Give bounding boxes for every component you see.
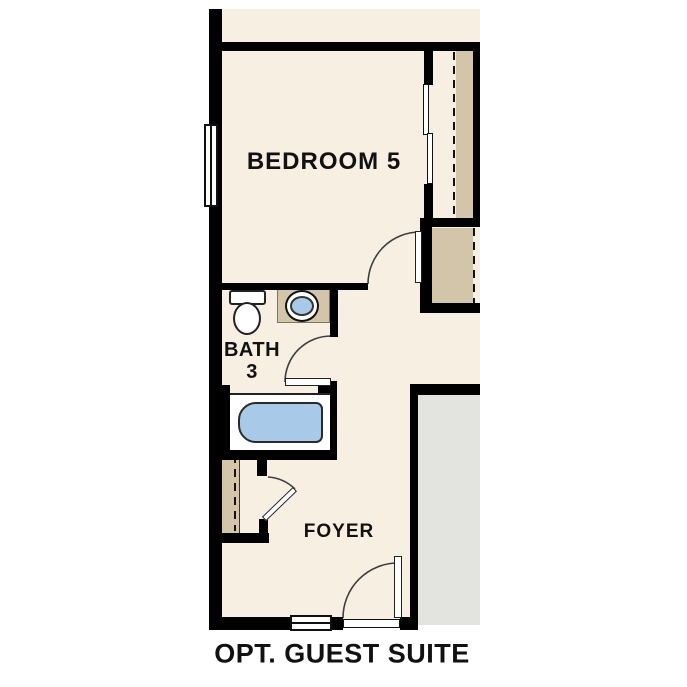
foyer-window [290, 615, 332, 631]
tub-platform-edge-line [228, 393, 330, 395]
bath-door-leaf [285, 378, 331, 386]
bathtub [238, 402, 323, 443]
wall-closet-jamb-top [424, 51, 433, 85]
wall-hall-closet-bottom [420, 303, 480, 313]
wall-closet-jamb-bottom [424, 184, 433, 220]
foyer-label: FOYER [304, 521, 374, 543]
bath-label: BATH 3 [224, 339, 280, 383]
bedroom-door-leaf [415, 231, 422, 283]
adjacent-area [418, 395, 480, 625]
closet-sliding-door-panel-2 [427, 133, 433, 184]
wall-foyer-closet-bottom [209, 533, 269, 543]
plan-title: OPT. GUEST SUITE [214, 639, 470, 670]
wall-bedroom-bottom [222, 283, 368, 290]
sink-basin [290, 296, 314, 316]
wall-tub-bottom [209, 450, 337, 460]
bedroom-closet-shelf [456, 51, 473, 218]
entry-door-threshold [343, 619, 400, 628]
wall-foyer-closet-jamb-top [257, 456, 267, 476]
bath-label-line2: 3 [224, 361, 280, 383]
wall-foyer-right [410, 384, 418, 630]
toilet-bowl [233, 302, 261, 335]
closet-sliding-door-panel-1 [423, 84, 429, 135]
wall-adjacent-top [410, 384, 480, 395]
bedroom-label: BEDROOM 5 [247, 148, 401, 176]
wall-bath-right-upper [330, 283, 338, 337]
foyer-window-mullion [292, 622, 330, 624]
bath-label-line1: BATH [224, 339, 280, 361]
entry-door-leaf [394, 556, 402, 618]
bedroom-window [204, 124, 218, 207]
wall-foyer-bottom-left [209, 617, 291, 630]
foyer-closet-shelf [219, 453, 240, 533]
wall-right-upper [473, 42, 480, 224]
floor-plan: BEDROOM 5 BATH 3 FOYER OPT. GUEST SUITE [0, 0, 687, 687]
hall-closet [432, 228, 473, 303]
wall-tub-left [222, 393, 230, 450]
bedroom-window-mullion [210, 126, 212, 205]
wall-bedroom-top [222, 42, 480, 51]
wall-foyer-bottom-mid [331, 617, 343, 630]
wall-foyer-bottom-right [400, 617, 418, 630]
